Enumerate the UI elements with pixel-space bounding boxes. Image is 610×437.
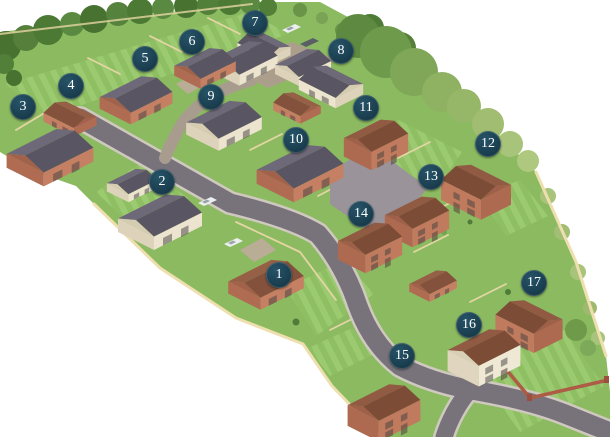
plot-marker-3[interactable]: 3 <box>10 94 36 120</box>
plot-marker-17[interactable]: 17 <box>521 270 547 296</box>
plot-marker-7[interactable]: 7 <box>242 10 268 36</box>
plot-marker-1[interactable]: 1 <box>266 262 292 288</box>
plot-marker-8[interactable]: 8 <box>328 38 354 64</box>
plot-marker-14[interactable]: 14 <box>348 201 374 227</box>
plot-marker-5[interactable]: 5 <box>132 46 158 72</box>
plot-marker-9[interactable]: 9 <box>198 84 224 110</box>
plot-marker-11[interactable]: 11 <box>353 95 379 121</box>
development-site-plan: 1234567891011121314151617 <box>0 0 610 437</box>
plot-marker-10[interactable]: 10 <box>283 127 309 153</box>
plot-marker-16[interactable]: 16 <box>456 312 482 338</box>
plot-marker-6[interactable]: 6 <box>179 29 205 55</box>
site-plan-illustration <box>0 0 610 437</box>
plot-marker-2[interactable]: 2 <box>149 169 175 195</box>
plot-marker-15[interactable]: 15 <box>389 343 415 369</box>
plot-marker-4[interactable]: 4 <box>58 73 84 99</box>
plot-marker-12[interactable]: 12 <box>475 131 501 157</box>
plot-marker-13[interactable]: 13 <box>418 164 444 190</box>
